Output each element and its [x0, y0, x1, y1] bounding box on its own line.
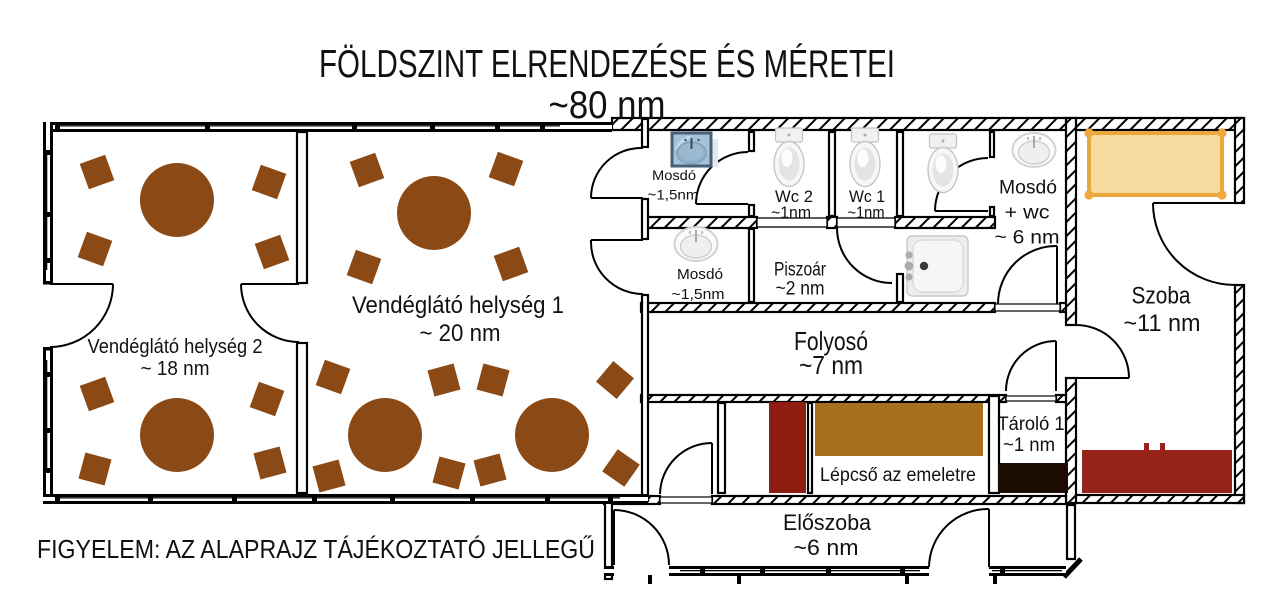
svg-text:Mosdó: Mosdó: [999, 178, 1057, 199]
svg-text:~ 6 nm: ~ 6 nm: [995, 228, 1060, 249]
svg-text:~1,5nm: ~1,5nm: [672, 286, 725, 303]
svg-text:Vendéglátó helység 2: Vendéglátó helység 2: [88, 336, 263, 358]
svg-text:FIGYELEM: AZ ALAPRAJZ TÁJÉKOZT: FIGYELEM: AZ ALAPRAJZ TÁJÉKOZTATÓ JELLEG…: [37, 534, 595, 564]
svg-text:Tároló 1: Tároló 1: [998, 414, 1065, 435]
svg-text:~1 nm: ~1 nm: [1003, 435, 1055, 456]
svg-text:~1nm: ~1nm: [848, 203, 885, 222]
svg-text:~2 nm: ~2 nm: [776, 279, 825, 300]
svg-text:Lépcső az emeletre: Lépcső az emeletre: [820, 465, 976, 486]
svg-text:~ 18 nm: ~ 18 nm: [141, 358, 210, 380]
svg-text:~80 nm: ~80 nm: [549, 84, 666, 127]
svg-text:Szoba: Szoba: [1132, 283, 1192, 310]
svg-text:Vendéglátó helység 1: Vendéglátó helység 1: [352, 292, 564, 319]
svg-text:FÖLDSZINT ELRENDEZÉSE ÉS MÉRET: FÖLDSZINT ELRENDEZÉSE ÉS MÉRETEI: [319, 43, 895, 86]
svg-text:~1nm: ~1nm: [771, 203, 811, 222]
svg-text:Piszoár: Piszoár: [774, 260, 827, 281]
svg-text:~7 nm: ~7 nm: [799, 350, 863, 380]
svg-text:Előszoba: Előszoba: [783, 510, 872, 535]
svg-text:~11 nm: ~11 nm: [1124, 310, 1201, 337]
svg-text:+ wc: + wc: [1005, 203, 1050, 224]
svg-text:~ 20 nm: ~ 20 nm: [420, 320, 501, 347]
svg-text:Mosdó: Mosdó: [652, 167, 696, 183]
svg-text:~1,5nm: ~1,5nm: [648, 187, 699, 203]
svg-text:Mosdó: Mosdó: [677, 266, 723, 283]
svg-text:~6 nm: ~6 nm: [794, 535, 859, 560]
